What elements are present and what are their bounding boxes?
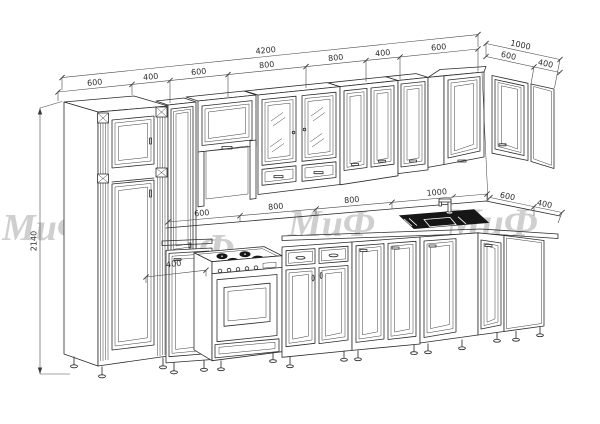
dim-label: 600 [87,77,103,88]
dim-label-height: 2140 [30,231,39,251]
dim-label: 600 [431,42,447,53]
kitchen-drawing-page: МиФ МиФ МиФ МиФ [0,0,600,424]
sink-cabinet-corner [420,233,504,354]
upper-cabinet-600-corner [428,67,486,168]
dim-label: 800 [344,195,360,205]
dim-label-overall-right: 1000 [510,39,532,52]
stove [194,247,282,371]
tall-cabinet [64,96,168,378]
upper-cabinet-800-glass [245,83,340,195]
dim-label: 600 [191,67,207,78]
dim-label: 800 [268,202,284,212]
kitchen-drawing: МиФ МиФ МиФ МиФ [0,0,600,424]
dim-label: 400 [536,198,553,210]
dim-label: 1000 [426,187,447,198]
upper-end-panel-400 [531,84,554,169]
upper-cabinet-600-hood [186,91,256,207]
dim-label-overall-top: 4200 [255,45,276,56]
dim-label: 600 [194,208,210,218]
base-cabinet-800-drawers [282,242,352,368]
base-cabinets [166,233,544,374]
dim-label-base-small: 400 [166,259,182,270]
base-cabinet-800-doors [352,237,420,361]
base-return-end [504,236,544,342]
dim-label: 800 [328,53,344,64]
upper-cabinet-600-return [492,76,528,161]
dim-label: 400 [375,48,391,59]
dim-label: 800 [259,60,275,71]
dim-label: 400 [143,72,159,83]
